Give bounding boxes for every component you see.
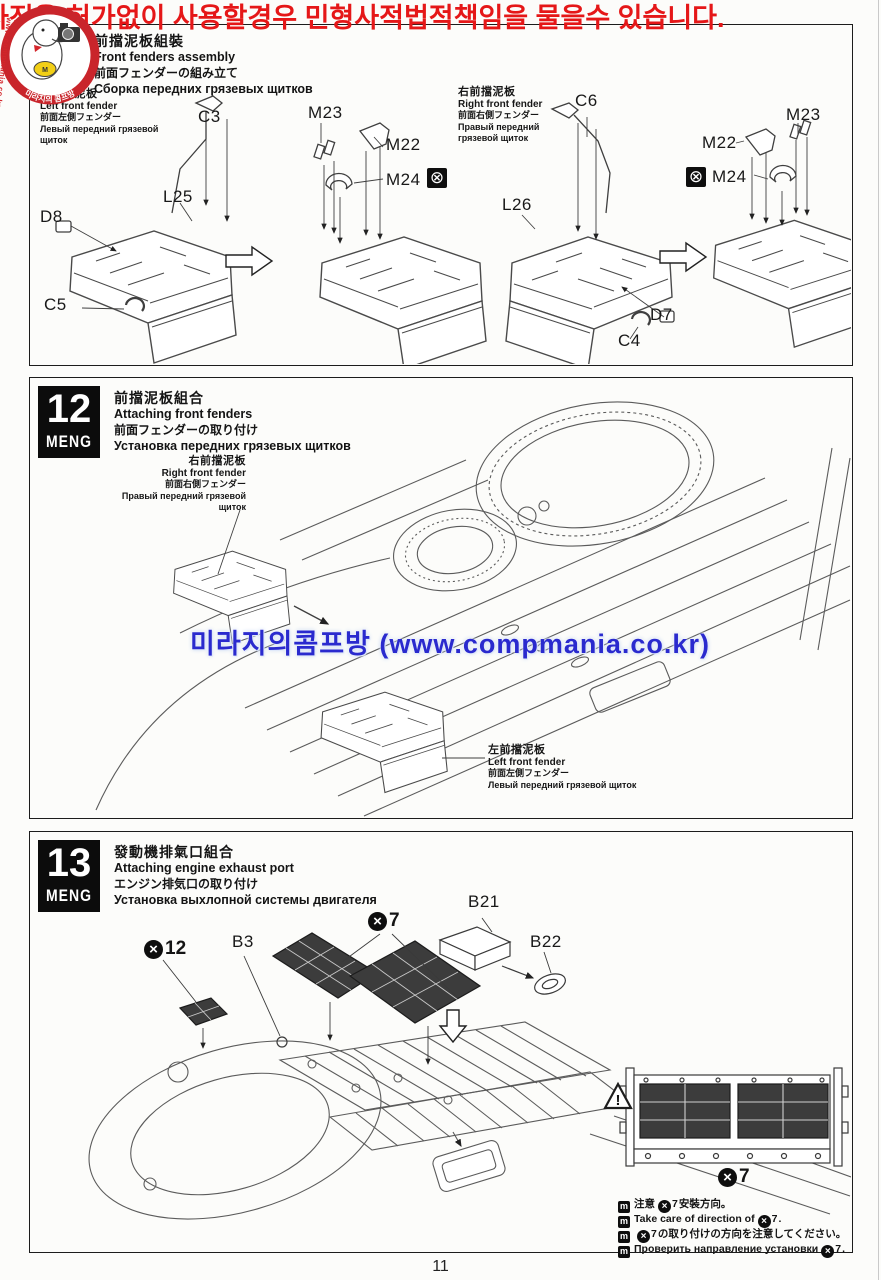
- right-front-fender-label: 右前擋泥板 Right front fender 前面右側フェンダー Правы…: [458, 87, 578, 145]
- exhaust-port-b21-drawing: [440, 918, 510, 970]
- part-label-b22: B22: [530, 932, 562, 952]
- part-label-l26: L26: [502, 195, 532, 215]
- note-qty: 7: [835, 1243, 841, 1255]
- pe-mesh-x12-part: [163, 960, 227, 1048]
- left-fender-assembled-drawing: [314, 123, 486, 364]
- step-number: 13: [38, 840, 100, 886]
- label-en: Left front fender: [488, 757, 648, 769]
- note-zh: m注意×7安裝方向。: [618, 1198, 858, 1213]
- part-label-m24: M24: [712, 167, 747, 187]
- part-label-d7: D7: [650, 305, 673, 325]
- note-text: Проверить направление установки: [634, 1243, 818, 1255]
- right-fender-assembled-drawing: [714, 120, 851, 347]
- scan-edge-line: [878, 0, 879, 1280]
- note-text: Take care of direction of: [634, 1213, 755, 1225]
- part-label-b3: B3: [232, 932, 254, 952]
- note-qty: 7: [672, 1198, 678, 1210]
- x-icon: ×: [821, 1245, 834, 1258]
- part-label-l25: L25: [163, 187, 193, 207]
- label-en: Right front fender: [458, 99, 578, 111]
- copyright-notice-watermark: 사진을 허가없이 사용할경우 민형사적법적책임을 물을수 있습니다.: [0, 0, 881, 35]
- pe-mesh-x7-part-a: [273, 933, 377, 998]
- meng-note-icon: m: [618, 1201, 630, 1213]
- title-zh: 發動機排氣口組合: [114, 844, 377, 860]
- left-front-fender-label: 左前擋泥板 Left front fender 前面左側フェンダー Левый …: [488, 745, 648, 791]
- section-step-13: ! 13 MENG 發動機排氣口組合 Attaching engine exha…: [29, 831, 853, 1253]
- part-label-m22: M22: [386, 135, 421, 155]
- part-label-m22: M22: [702, 133, 737, 153]
- label-ja: 前面左側フェンダー: [488, 768, 648, 780]
- part-label-m23: M23: [786, 105, 821, 125]
- label-ru: Правый передний грязевой щиток: [100, 491, 246, 514]
- title-zh: 前擋泥板組合: [114, 390, 351, 406]
- arrow-right-icon: [226, 247, 272, 275]
- meng-note-icon: m: [618, 1216, 630, 1228]
- x-icon: ×: [368, 912, 387, 931]
- center-site-watermark: 미라지의콤프방 (www.compmania.co.kr): [190, 622, 710, 661]
- x7-direction-inset-drawing: [620, 1068, 848, 1166]
- label-ru: Правый передний грязевой щиток: [458, 122, 578, 145]
- section-title-front-fenders-assembly: 前擋泥板組裝 Front fenders assembly 前面フェンダーの組み…: [94, 33, 313, 97]
- label-ja: 前面右側フェンダー: [100, 479, 246, 491]
- step-13-title: 發動機排氣口組合 Attaching engine exhaust port エ…: [114, 844, 377, 908]
- step-number-badge: 12 MENG: [38, 386, 100, 458]
- title-ja: エンジン排気口の取り付け: [114, 876, 377, 892]
- title-ja: 前面フェンダーの取り付け: [114, 422, 351, 438]
- part-label-c3: C3: [198, 107, 221, 127]
- note-ja: m×7の取り付けの方向を注意してください。: [618, 1228, 858, 1243]
- note-text: 安裝方向。: [679, 1198, 732, 1210]
- left-front-fender-attach-drawing: [321, 692, 485, 792]
- direction-notes: m注意×7安裝方向。 mTake care of direction of×7.…: [618, 1198, 858, 1258]
- title-zh: 前擋泥板組裝: [94, 33, 313, 49]
- label-ru: Левый передний грязевой щиток: [40, 124, 160, 147]
- label-zh: 右前擋泥板: [458, 87, 578, 99]
- part-label-c4: C4: [618, 331, 641, 351]
- note-text: 注意: [634, 1198, 655, 1210]
- note-ru: mПроверить направление установки×7.: [618, 1243, 858, 1258]
- step-12-title: 前擋泥板組合 Attaching front fenders 前面フェンダーの取…: [114, 390, 351, 454]
- section-step-12: 12 MENG 前擋泥板組合 Attaching front fenders 前…: [29, 377, 853, 819]
- title-en: Front fenders assembly: [94, 49, 313, 65]
- no-glue-icon: ⊗: [427, 168, 447, 188]
- meng-logo: MENG: [38, 431, 100, 450]
- x7-quantity: 7: [389, 910, 400, 932]
- x-icon: ×: [758, 1215, 771, 1228]
- compmania-logo-watermark: M 미라지의 콤프방: [0, 3, 100, 107]
- no-glue-icon: ⊗: [686, 167, 706, 187]
- title-ja: 前面フェンダーの組み立て: [94, 65, 313, 81]
- label-zh: 右前擋泥板: [100, 456, 246, 468]
- logo-m-mark: M: [42, 67, 48, 74]
- x7-inset-quantity: 7: [739, 1166, 750, 1188]
- warning-exclaim: !: [616, 1092, 621, 1109]
- note-qty: 7: [651, 1228, 657, 1240]
- instruction-page: 前擋泥板組裝 Front fenders assembly 前面フェンダーの組み…: [0, 0, 881, 1280]
- part-label-d8: D8: [40, 207, 63, 227]
- part-label-m23: M23: [308, 103, 343, 123]
- page-number: 11: [0, 1258, 881, 1276]
- section-front-fenders-assembly: 前擋泥板組裝 Front fenders assembly 前面フェンダーの組み…: [29, 24, 853, 366]
- note-text: .: [778, 1213, 781, 1225]
- part-label-c5: C5: [44, 295, 67, 315]
- step-number: 12: [38, 386, 100, 432]
- label-zh: 左前擋泥板: [488, 745, 648, 757]
- label-ru: Левый передний грязевой щиток: [488, 780, 648, 792]
- x-icon: ×: [144, 940, 163, 959]
- step-number-badge: 13 MENG: [38, 840, 100, 912]
- pe-part-x12-label: × 12: [144, 938, 186, 960]
- exhaust-bracket-b22-drawing: [502, 952, 568, 998]
- title-ru: Установка передних грязевых щитков: [114, 438, 351, 454]
- pe-part-x7-inset-label: × 7: [718, 1166, 750, 1188]
- title-en: Attaching engine exhaust port: [114, 860, 377, 876]
- x-icon: ×: [658, 1200, 671, 1213]
- note-en: mTake care of direction of×7.: [618, 1213, 858, 1228]
- x12-quantity: 12: [165, 938, 186, 960]
- note-text: .: [842, 1243, 845, 1255]
- part-label-b21: B21: [468, 892, 500, 912]
- meng-note-icon: m: [618, 1231, 630, 1243]
- pe-part-x7-label: × 7: [368, 910, 400, 932]
- meng-note-icon: m: [618, 1246, 630, 1258]
- label-en: Right front fender: [100, 468, 246, 480]
- x-icon: ×: [718, 1168, 737, 1187]
- meng-logo: MENG: [38, 885, 100, 904]
- right-front-fender-label: 右前擋泥板 Right front fender 前面右側フェンダー Правы…: [100, 456, 246, 514]
- note-text: の取り付けの方向を注意してください。: [658, 1228, 846, 1240]
- arrow-down-icon: [440, 1010, 466, 1042]
- title-en: Attaching front fenders: [114, 406, 351, 422]
- label-ja: 前面右側フェンダー: [458, 110, 578, 122]
- title-ru: Установка выхлопной системы двигателя: [114, 892, 377, 908]
- note-qty: 7: [772, 1213, 778, 1225]
- part-label-m24: M24: [386, 170, 421, 190]
- x-icon: ×: [637, 1230, 650, 1243]
- part-label-c6: C6: [575, 91, 598, 111]
- label-ja: 前面左側フェンダー: [40, 112, 160, 124]
